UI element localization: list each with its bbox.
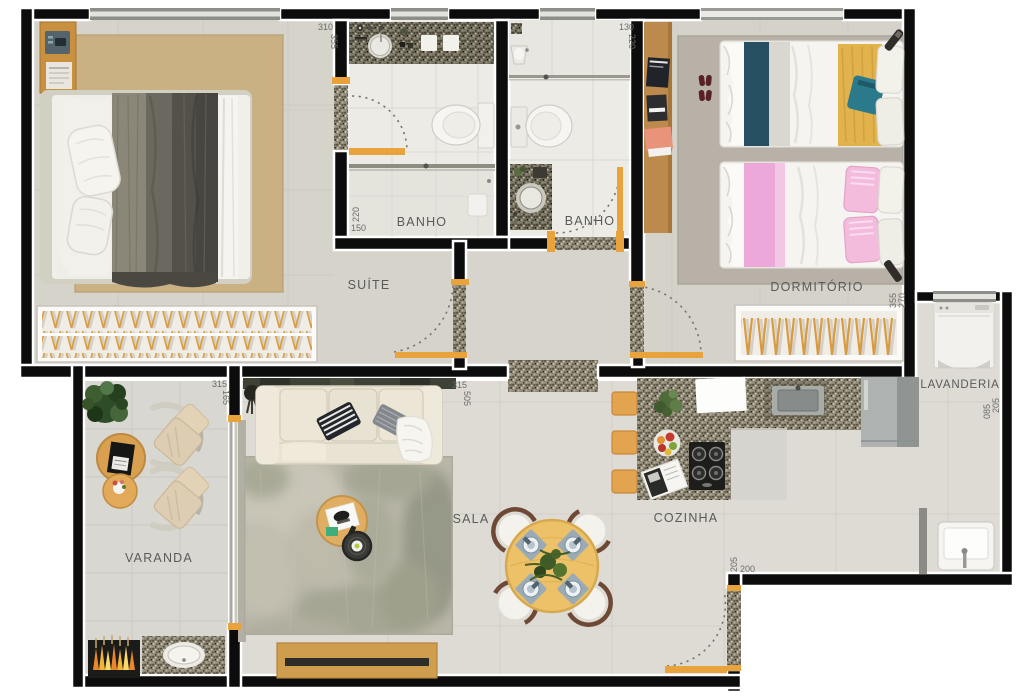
svg-text:200: 200	[740, 564, 755, 574]
svg-text:150: 150	[351, 223, 366, 233]
svg-text:355: 355	[329, 34, 339, 49]
svg-text:505: 505	[462, 391, 472, 406]
svg-text:SALA: SALA	[453, 512, 490, 526]
svg-text:BANHO: BANHO	[397, 215, 447, 229]
svg-text:VARANDA: VARANDA	[125, 551, 193, 565]
svg-text:SUÍTE: SUÍTE	[348, 277, 391, 292]
svg-text:220: 220	[351, 207, 361, 222]
svg-text:LAVANDERIA: LAVANDERIA	[920, 379, 999, 391]
svg-text:COZINHA: COZINHA	[654, 511, 719, 525]
svg-text:130: 130	[619, 22, 634, 32]
svg-text:315: 315	[212, 379, 227, 389]
svg-text:205: 205	[991, 398, 1001, 413]
svg-text:BANHO: BANHO	[565, 214, 615, 228]
svg-text:DORMITÓRIO: DORMITÓRIO	[770, 279, 863, 294]
svg-text:270: 270	[897, 293, 907, 308]
svg-text:315: 315	[452, 380, 467, 390]
svg-text:220: 220	[627, 34, 637, 49]
svg-text:085: 085	[982, 404, 992, 419]
svg-text:205: 205	[729, 557, 739, 572]
svg-text:165: 165	[221, 390, 231, 405]
svg-text:310: 310	[318, 22, 333, 32]
